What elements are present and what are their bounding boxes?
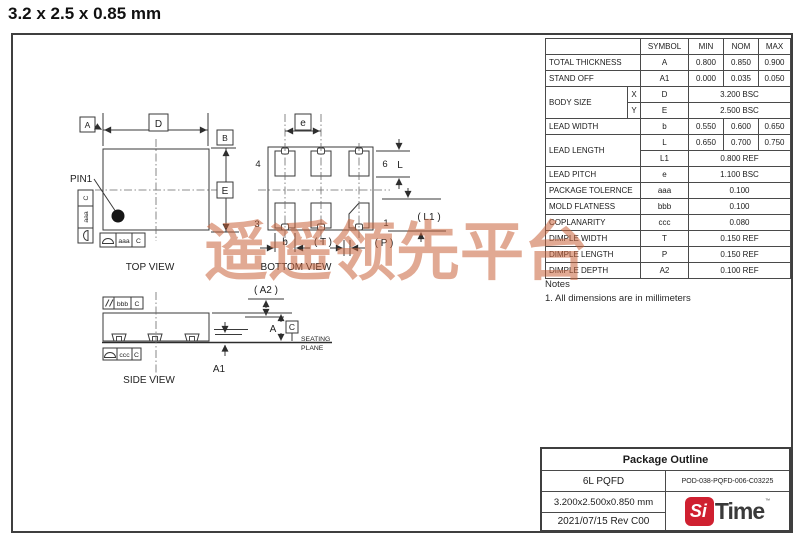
- pin1-label: PIN1: [70, 174, 93, 185]
- side-view-leads: [112, 334, 199, 341]
- col-header-max: MAX: [759, 39, 791, 55]
- notes-section: Notes 1. All dimensions are in millimete…: [545, 279, 691, 304]
- title-block-heading: Package Outline: [542, 449, 789, 471]
- fcf-bottom-datum: C: [136, 238, 141, 245]
- sitime-logo-si-badge: Si: [685, 497, 714, 526]
- fcf-left-tolerance: aaa: [83, 211, 90, 223]
- seating-plane-label-1: SEATING: [301, 336, 330, 343]
- table-row: LEAD PITCH e 1.100 BSC: [546, 167, 791, 183]
- side-view: bbb C ccc C: [102, 285, 332, 386]
- pin-number-1: 1: [383, 218, 388, 229]
- pin-number-6: 6: [382, 159, 387, 170]
- dim-e-pitch-label: e: [300, 118, 306, 129]
- fcf-parallel-tolerance: bbb: [117, 301, 129, 308]
- bottom-view: e L 6 ( L1 ) b ( T ) ( P: [254, 114, 446, 273]
- dim-e-label: E: [222, 186, 229, 197]
- top-view-fcf-left: C aaa: [78, 190, 93, 243]
- bottom-view-caption: BOTTOM VIEW: [261, 262, 332, 273]
- fcf-left-datum: C: [83, 195, 90, 200]
- seating-plane-label-2: PLANE: [301, 345, 324, 352]
- trademark-icon: ™: [765, 498, 770, 504]
- table-row: DIMPLE LENGTH P 0.150 REF: [546, 247, 791, 263]
- pin1-leader: [94, 179, 116, 212]
- dim-d-label: D: [155, 119, 162, 130]
- package-name: 6L PQFD: [542, 471, 666, 492]
- dim-l-label: L: [397, 160, 403, 171]
- note-item: 1. All dimensions are in millimeters: [545, 293, 691, 304]
- fcf-profile-datum: C: [134, 352, 139, 359]
- side-view-fcf-parallelism: bbb C: [103, 297, 143, 309]
- dim-a2-label: ( A2 ): [254, 285, 278, 296]
- dim-p-label: ( P ): [375, 238, 394, 249]
- table-row: DIMPLE DEPTH A2 0.100 REF: [546, 263, 791, 279]
- sitime-logo: Si Time ™: [666, 492, 789, 530]
- sitime-logo-si-text: Si: [690, 501, 707, 522]
- dimension-table: SYMBOL MIN NOM MAX TOTAL THICKNESS A 0.8…: [545, 38, 791, 279]
- table-row: BODY SIZE X D 3.200 BSC: [546, 87, 791, 103]
- pin-number-3: 3: [254, 219, 259, 230]
- datum-b-label: B: [222, 133, 228, 143]
- document-number: POD-038-PQFD-006-C03225: [666, 471, 789, 492]
- table-row: STAND OFF A1 0.000 0.035 0.050: [546, 71, 791, 87]
- col-header-nom: NOM: [724, 39, 759, 55]
- top-view: D A B E PIN1 C: [70, 113, 239, 273]
- dim-b-label: b: [282, 237, 288, 248]
- dim-a1-label: A1: [213, 364, 226, 375]
- package-outline-page: 3.2 x 2.5 x 0.85 mm D A B: [0, 0, 799, 539]
- dim-t-label: ( T ): [314, 237, 332, 248]
- datum-c-label: C: [289, 322, 295, 332]
- top-view-fcf-bottom: aaa C: [100, 233, 145, 247]
- table-row: MOLD FLATNESS bbb 0.100: [546, 199, 791, 215]
- table-row: TOTAL THICKNESS A 0.800 0.850 0.900: [546, 55, 791, 71]
- sitime-logo-time-text: Time: [715, 498, 764, 525]
- dim-a-label: A: [270, 324, 277, 335]
- fcf-parallel-datum: C: [135, 301, 140, 308]
- fcf-bottom-tolerance: aaa: [118, 238, 130, 245]
- table-row: COPLANARITY ccc 0.080: [546, 215, 791, 231]
- top-view-caption: TOP VIEW: [126, 262, 175, 273]
- dim-l1-label: ( L1 ): [417, 212, 440, 223]
- pin-number-4: 4: [255, 159, 260, 170]
- table-row: PACKAGE TOLERNCE aaa 0.100: [546, 183, 791, 199]
- col-header-min: MIN: [689, 39, 724, 55]
- title-block: Package Outline 6L PQFD POD-038-PQFD-006…: [540, 447, 791, 532]
- col-header-symbol: SYMBOL: [641, 39, 689, 55]
- table-row: LEAD LENGTH L 0.650 0.700 0.750: [546, 135, 791, 151]
- side-view-fcf-profile: ccc C: [103, 348, 141, 360]
- date-revision: 2021/07/15 Rev C00: [542, 513, 666, 530]
- fcf-profile-tolerance: ccc: [119, 352, 130, 359]
- table-row: DIMPLE WIDTH T 0.150 REF: [546, 231, 791, 247]
- package-size: 3.200x2.500x0.850 mm: [542, 492, 666, 513]
- table-header-row: SYMBOL MIN NOM MAX: [546, 39, 791, 55]
- datum-a-label: A: [85, 120, 91, 130]
- table-row: LEAD WIDTH b 0.550 0.600 0.650: [546, 119, 791, 135]
- notes-heading: Notes: [545, 279, 691, 290]
- side-view-caption: SIDE VIEW: [123, 375, 175, 386]
- pin1-dot: [112, 210, 125, 223]
